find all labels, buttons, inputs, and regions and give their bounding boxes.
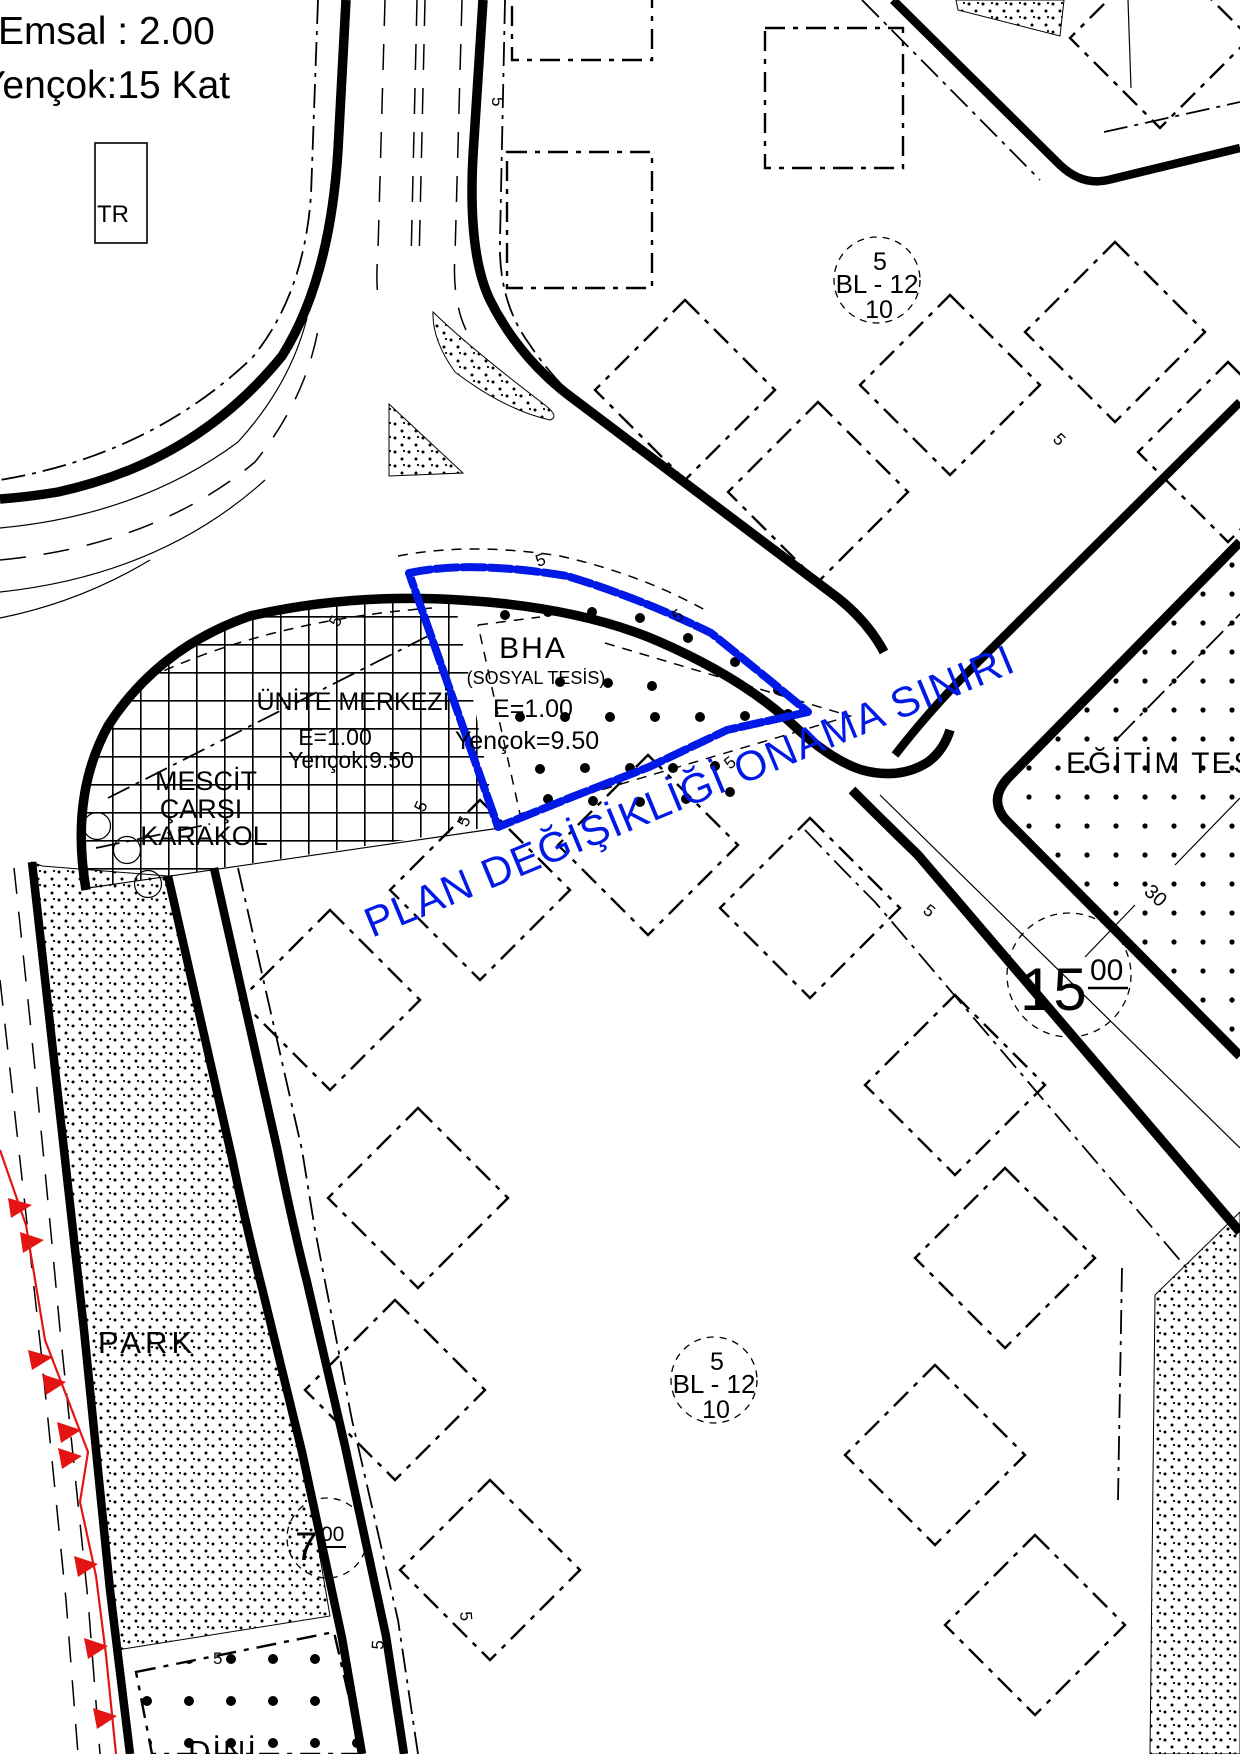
zoning-plan-map: TR PLAN DEĞİŞİKLİĞİ ONAMA SINIRI Emsal :… <box>0 0 1240 1754</box>
unite-use-carsi: ÇARŞI <box>160 794 243 824</box>
setback-dim-label: 5 <box>456 1611 476 1622</box>
parcel <box>400 1480 580 1660</box>
road-width-15-decimal: 00 <box>1090 954 1123 987</box>
parcel <box>945 1535 1125 1715</box>
setback-dim-label: 5 <box>488 97 507 106</box>
parcel <box>765 28 903 168</box>
setback-dim-label: 5 <box>1049 429 1069 449</box>
road-width-15: 15 00 <box>1007 913 1131 1037</box>
block-lot-bottom: 10 <box>865 296 893 324</box>
red-triangle-marker <box>58 1448 82 1469</box>
dini-label: DİNİ <box>188 1734 258 1754</box>
road-line <box>1128 0 1131 88</box>
unite-use-mescit: MESCİT <box>155 765 257 796</box>
unite-name: ÜNİTE MERKEZİ <box>256 687 449 716</box>
emsal-note: Emsal : 2.00 <box>0 10 215 53</box>
road-edge <box>893 0 1240 181</box>
yencok-note: Yençok:15 Kat <box>0 64 230 107</box>
parcel <box>595 300 775 480</box>
parcel <box>328 1108 508 1288</box>
setback-dim-label: 5 <box>919 901 938 922</box>
egitim-label: EĞİTİM TES <box>1066 747 1240 780</box>
setback-dim-label: 5 <box>213 1649 222 1668</box>
bha-inner-parcel <box>478 617 540 625</box>
block-badge-south: 5 BL - 12 10 <box>671 1337 757 1424</box>
lane-line <box>454 0 466 330</box>
parcel-line <box>1104 102 1240 132</box>
plan-canvas: TR PLAN DEĞİŞİKLİĞİ ONAMA SINIRI Emsal :… <box>0 0 1240 1754</box>
parcel <box>845 1365 1025 1545</box>
tr-label: TR <box>97 201 129 228</box>
unite-use-karakol: KARAKOL <box>140 821 268 851</box>
transformer-box: TR <box>95 143 147 243</box>
traffic-island-triangle <box>389 404 463 476</box>
lane-line <box>377 0 385 305</box>
park-label: PARK <box>98 1325 196 1360</box>
red-triangle-marker <box>8 1198 32 1218</box>
parcel <box>720 818 900 998</box>
bha-yencok: Yençok=9.50 <box>455 727 599 755</box>
park-area-southeast <box>1150 1212 1240 1754</box>
bha-subtitle: (SOSYAL TESİS) <box>467 668 606 688</box>
setback-dim-label: 5 <box>368 1639 388 1650</box>
parcel <box>915 1168 1095 1348</box>
block-badge-north: 5 BL - 12 10 <box>834 237 920 324</box>
unite-yencok: Yençok:9.50 <box>288 747 414 773</box>
parcel <box>728 402 908 582</box>
lane-line <box>419 0 425 264</box>
parcel <box>507 152 652 288</box>
block-code: BL - 12 <box>836 269 919 299</box>
green-strip-topright <box>956 0 1064 36</box>
parcel <box>865 995 1045 1175</box>
parcel <box>1070 0 1240 128</box>
parcel-line <box>1118 1268 1122 1500</box>
bha-code: BHA <box>499 632 567 665</box>
block-lot-bottom: 10 <box>702 1396 730 1424</box>
bha-zone-labels: BHA (SOSYAL TESİS) E=1.00 Yençok=9.50 <box>455 632 606 755</box>
road-width-7-decimal: 00 <box>321 1523 344 1546</box>
parcel <box>1025 242 1205 422</box>
red-triangle-marker <box>20 1232 44 1253</box>
parcel <box>512 0 652 60</box>
road-width-7-value: 7 <box>295 1525 317 1569</box>
road-width-15-value: 15 <box>1020 956 1087 1023</box>
bha-emsal: E=1.00 <box>493 695 573 723</box>
lane-line <box>411 0 417 262</box>
parcel-line <box>500 0 862 618</box>
block-code: BL - 12 <box>673 1369 756 1399</box>
